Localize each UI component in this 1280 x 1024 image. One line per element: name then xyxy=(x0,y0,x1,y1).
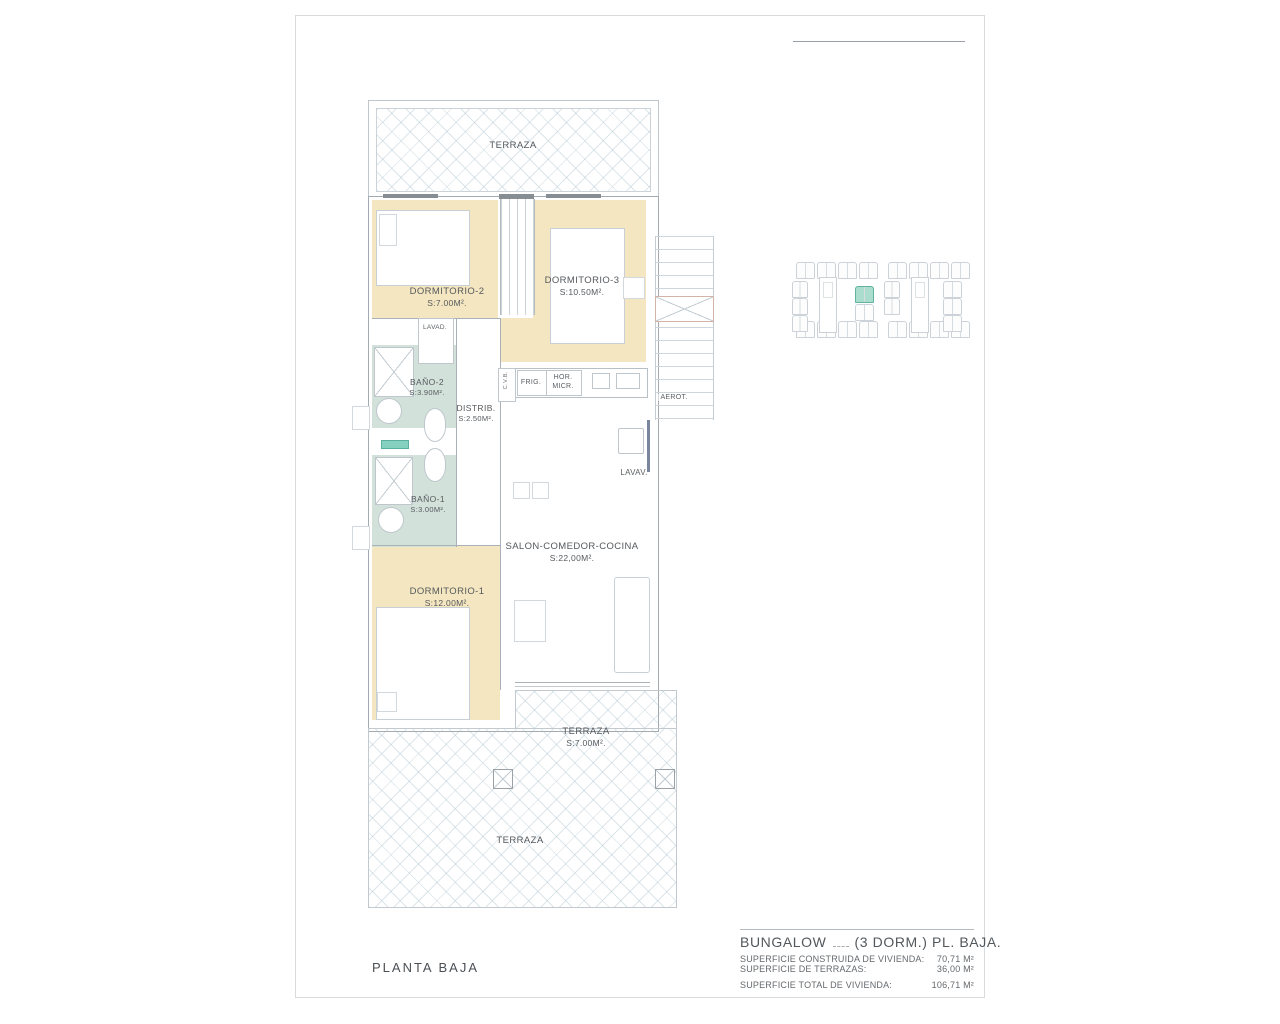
dormitorio2-label: DORMITORIO-2 S:7.00M². xyxy=(410,286,485,309)
cvb-label: C.V.B. xyxy=(503,371,509,389)
dining-table xyxy=(514,600,546,642)
shelf-highlight xyxy=(381,440,409,449)
left-stub-1 xyxy=(352,406,370,430)
site-plan xyxy=(790,253,986,347)
site-unit xyxy=(943,281,962,298)
terraza-salon-paving xyxy=(515,690,677,729)
summary-block: BUNGALOW(3 DORM.) PL. BAJA. SUPERFICIE C… xyxy=(740,929,974,990)
floor-plan-title: PLANTA BAJA xyxy=(372,960,479,975)
aerotermia-label: AEROT. xyxy=(658,394,689,401)
toilet-bano1 xyxy=(424,448,446,482)
summary-row-constructed: SUPERFICIE CONSTRUIDA DE VIVIENDA: 70,71… xyxy=(740,954,974,964)
toilet-bano2 xyxy=(424,408,446,442)
summary-row-value: 36,00 M² xyxy=(937,964,974,974)
site-unit xyxy=(888,321,907,338)
pillow-dorm2 xyxy=(379,214,397,246)
nightstand-dorm3 xyxy=(623,277,645,299)
distribuidor-label: DISTRIB. S:2.50M². xyxy=(456,403,495,424)
site-unit xyxy=(884,281,900,298)
site-unit xyxy=(859,262,878,279)
window-dorm3 xyxy=(546,194,601,198)
dormitorio1-label: DORMITORIO-1 S:12.00M². xyxy=(410,586,485,609)
lavadero-label: LAVAD. xyxy=(423,324,447,331)
washing-machine xyxy=(618,428,644,454)
summary-row-terraces: SUPERFICIE DE TERRAZAS: 36,00 M² xyxy=(740,964,974,974)
shower-bano1 xyxy=(375,457,413,505)
site-unit xyxy=(884,298,900,315)
oven-label: HOR. xyxy=(554,374,573,381)
drawing-page: { "page": { "floor_title": "PLANTA BAJA"… xyxy=(0,0,1280,1024)
site-unit xyxy=(855,304,874,321)
site-unit xyxy=(796,262,815,279)
summary-row-value: 106,71 M² xyxy=(932,980,974,990)
site-unit xyxy=(951,262,970,279)
terraza-salon-label: TERRAZA S:7.00M². xyxy=(562,726,609,749)
site-unit xyxy=(888,262,907,279)
site-unit xyxy=(792,298,808,315)
bano1-label: BAÑO-1 S:3.00M². xyxy=(410,494,445,515)
salon-label: SALON-COMEDOR-COCINA S:22,00M². xyxy=(505,541,638,564)
entry-passage xyxy=(500,199,535,315)
bungalow-label: BUNGALOW xyxy=(740,934,826,950)
wall-dorm1-top xyxy=(372,545,500,546)
window-dorm2 xyxy=(383,194,438,198)
kitchen-hob xyxy=(616,373,640,389)
entry-door-head xyxy=(499,194,534,199)
washbasin-bano2 xyxy=(376,398,402,424)
washbasin-bano1 xyxy=(378,507,404,533)
site-building xyxy=(819,277,837,333)
summary-row-label: SUPERFICIE TOTAL DE VIVIENDA: xyxy=(740,980,892,990)
site-unit xyxy=(792,315,808,332)
micro-label: MICR. xyxy=(552,383,573,390)
dormitorio3-label: DORMITORIO-3 S:10.50M². xyxy=(545,275,620,298)
fridge-label: FRIG. xyxy=(521,379,541,386)
site-unit xyxy=(943,315,962,332)
summary-top-line xyxy=(740,929,974,930)
terraza-top-label: TERRAZA xyxy=(489,140,536,152)
site-unit xyxy=(859,321,878,338)
site-unit xyxy=(838,262,857,279)
summary-row-label: SUPERFICIE CONSTRUIDA DE VIVIENDA: xyxy=(740,954,924,964)
bungalow-number-blank xyxy=(833,936,849,947)
kitchen-sink xyxy=(592,373,610,389)
highlighted-unit xyxy=(855,286,874,303)
summary-row-total: SUPERFICIE TOTAL DE VIVIENDA: 106,71 M² xyxy=(740,980,974,990)
site-unit xyxy=(943,298,962,315)
site-unit xyxy=(930,262,949,279)
bungalow-type-label: (3 DORM.) PL. BAJA. xyxy=(854,934,1001,950)
terraza-bottom-paving xyxy=(368,728,677,908)
summary-row-label: SUPERFICIE DE TERRAZAS: xyxy=(740,964,866,974)
summary-row-value: 70,71 M² xyxy=(937,954,974,964)
site-unit xyxy=(838,321,857,338)
wall-baths-right xyxy=(456,318,457,547)
lavavajillas-label: LAVAV. xyxy=(620,468,647,477)
pillar-2 xyxy=(655,769,675,789)
title-block-top-line xyxy=(793,41,965,42)
shower-bano2 xyxy=(374,347,414,397)
duct-line xyxy=(647,420,650,472)
terraza-bottom-label: TERRAZA xyxy=(496,835,543,847)
summary-title: BUNGALOW(3 DORM.) PL. BAJA. xyxy=(740,934,974,950)
dining-chair-2 xyxy=(532,482,549,499)
bano2-label: BAÑO-2 S:3.90M². xyxy=(409,377,444,398)
site-unit xyxy=(792,281,808,298)
nightstand-dorm1 xyxy=(377,692,397,712)
dining-chair-1 xyxy=(513,482,530,499)
stairs-landing xyxy=(655,296,714,322)
sofa xyxy=(614,577,650,673)
site-building xyxy=(911,277,929,333)
pillar-1 xyxy=(493,769,513,789)
left-stub-2 xyxy=(352,526,370,550)
stairs xyxy=(655,236,714,420)
